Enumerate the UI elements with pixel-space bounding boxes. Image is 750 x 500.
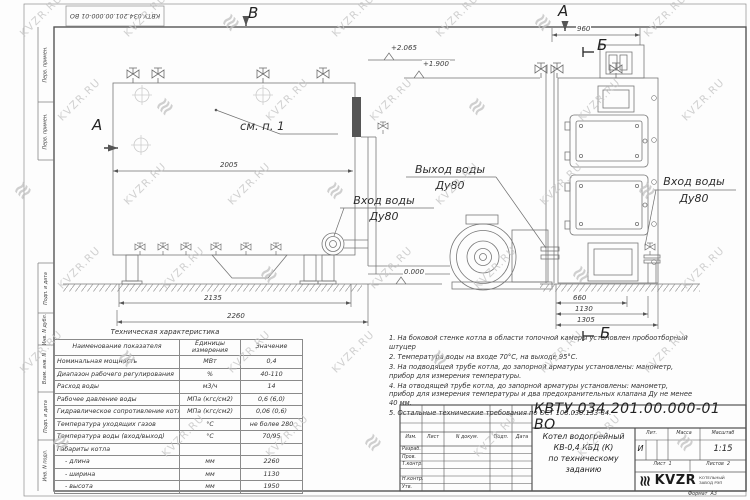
spec-cell-value: не более 280 [241, 418, 303, 431]
note-2: 2. Температура воды на входе 70°С, на вы… [389, 353, 695, 362]
spec-cell-name: Диапазон рабочего регулирования [55, 368, 180, 381]
spec-cell-name: Номинальная мощность [55, 356, 180, 369]
format-cell: Формат А3 [688, 492, 748, 497]
spec-cell-value: 0,4 [241, 356, 303, 369]
mass-label: Масса [668, 431, 700, 436]
dim-2135: 2135 [203, 294, 223, 302]
scale-value: 1:15 [700, 444, 746, 454]
kvzr-logo-subtitle: КОТЕЛЬНЫЙ ЗАВОД РЭП [699, 476, 725, 485]
margin-cell-vzam-inv: Взам. инв. N [38, 345, 54, 392]
inlet-right-label-line2: Ду80 [650, 192, 738, 205]
spec-cell-value: 1950 [241, 481, 303, 494]
spec-cell-value: 14 [241, 381, 303, 394]
title-block-doc-number: КВТУ.034.201.00.000-01 ВО [534, 406, 744, 427]
logo-sub-line2: ЗАВОД РЭП [699, 480, 722, 485]
col-list: Лист [422, 435, 444, 440]
spec-row: Диапазон рабочего регулирования%40-110 [55, 368, 303, 381]
margin-cell-podp-data-2: Подп. и дата [38, 392, 54, 440]
see-item-callout: см. п. 1 [240, 119, 284, 133]
drawing-sheet: КВТУ.034.201.00.000-01 ВО Перв. примен. … [0, 0, 750, 500]
rotated-doc-number: КВТУ.034.201.00.000-01 ВО [66, 6, 164, 26]
boiler-front-view [535, 45, 700, 292]
product-title-line2: КВ-0,4 КБД (К) [533, 442, 634, 453]
kvzr-coil-icon: ≋ [640, 474, 650, 487]
dim-1130: 1130 [574, 305, 594, 313]
col-podp: Подп. [490, 435, 512, 440]
row-utv: Утв. [402, 485, 412, 490]
spec-cell-value: 1130 [241, 468, 303, 481]
margin-cell-label: Подп. и дата [44, 272, 49, 305]
sheets-label: Листов [706, 462, 724, 467]
level-mark-top: +2.065 [390, 44, 418, 52]
section-letter-a-left: А [92, 116, 102, 134]
spec-cell-name: - ширина [55, 468, 180, 481]
spec-cell-unit: °С [180, 431, 241, 444]
spec-cell-unit: м3/ч [180, 381, 241, 394]
spec-cell-value: 0,6 (6,0) [241, 393, 303, 406]
product-title: Котел водогрейный КВ-0,4 КБД (К) по техн… [533, 431, 634, 475]
sheet-label: Лист [653, 462, 665, 467]
view-letter-a-right: А [558, 2, 568, 20]
spec-table-title: Техническая характеристика [60, 328, 270, 336]
spec-header-row: Наименование показателя Единицы измерени… [55, 340, 303, 356]
inlet-left-label-line1: Вход воды [336, 194, 432, 207]
spec-row: Габариты котла [55, 443, 303, 456]
sheet-cell: Лист 1 [635, 462, 690, 467]
level-mark-zero: 0.000 [403, 268, 425, 276]
margin-cell-inv-dubl: Инв. N дубл. [38, 313, 54, 345]
spec-header-unit: Единицы измерения [180, 340, 241, 356]
product-title-line1: Котел водогрейный [533, 431, 634, 442]
spec-header-value: Значение [241, 340, 303, 356]
spec-cell-value [241, 443, 303, 456]
margin-cell-label: Перв. примен. [44, 113, 49, 149]
manufacturer-logo: ≋ KVZR КОТЕЛЬНЫЙ ЗАВОД РЭП [639, 473, 725, 488]
kvzr-logo-text: KVZR [655, 473, 697, 488]
spec-row: Расход водым3/ч14 [55, 381, 303, 394]
format-value: А3 [711, 492, 717, 497]
spec-row: - ширинамм1130 [55, 468, 303, 481]
scale-label: Масштаб [700, 431, 746, 436]
dim-2005: 2005 [219, 161, 239, 169]
spec-cell-unit [180, 443, 241, 456]
boiler-side-view [63, 68, 450, 292]
spec-cell-name: Габариты котла [55, 443, 180, 456]
dim-660: 660 [572, 294, 587, 302]
spec-cell-unit: МПа (кгс/см2) [180, 406, 241, 419]
spec-cell-unit: мм [180, 456, 241, 469]
spec-cell-value: 2260 [241, 456, 303, 469]
inlet-right-label-line1: Вход воды [650, 175, 738, 188]
inlet-left-label-line2: Ду80 [336, 210, 432, 223]
spec-cell-name: Температура уходящих газов [55, 418, 180, 431]
spec-cell-name: - длина [55, 456, 180, 469]
col-data: Дата [512, 435, 532, 440]
lit-label: Лит. [635, 431, 668, 436]
spec-row: Рабочее давление водыМПа (кгс/см2)0,6 (6… [55, 393, 303, 406]
level-mark-mid: +1.900 [422, 60, 450, 68]
spec-row: Гидравлическое сопротивление котлаМПа (к… [55, 406, 303, 419]
spec-row: - длинамм2260 [55, 456, 303, 469]
row-razrab: Разраб. [402, 447, 421, 452]
row-tkontr: Т.контр. [402, 462, 423, 467]
row-prov: Пров. [402, 455, 416, 460]
margin-cell-label: Инв. N подл. [44, 450, 49, 482]
dim-960: 960 [576, 25, 591, 33]
spec-cell-unit: °С [180, 418, 241, 431]
spec-cell-unit: МВт [180, 356, 241, 369]
spec-cell-unit: мм [180, 481, 241, 494]
margin-cell-label: Перв. примен. [44, 46, 49, 82]
spec-cell-name: Рабочее давление воды [55, 393, 180, 406]
margin-cell-inv-podl: Инв. N подл. [38, 440, 54, 491]
spec-cell-value: 0,06 (0,6) [241, 406, 303, 419]
lit-value: И [635, 444, 646, 453]
col-izm: Изм. [400, 435, 422, 440]
note-3: 3. На подводящей трубе котла, до запорно… [389, 363, 695, 381]
spec-cell-unit: % [180, 368, 241, 381]
spec-cell-unit: МПа (кгс/см2) [180, 393, 241, 406]
spec-cell-name: Температура воды (вход/выход) [55, 431, 180, 444]
sheets-value: 2 [727, 462, 730, 467]
spec-cell-value: 70/95 [241, 431, 303, 444]
note-1: 1. На боковой стенке котла в области топ… [389, 334, 695, 352]
spec-row: Температура воды (вход/выход)°С70/95 [55, 431, 303, 444]
dim-1305: 1305 [576, 316, 596, 324]
spec-cell-unit: мм [180, 468, 241, 481]
col-ndoc: N докум. [444, 435, 490, 440]
fan-blower [450, 215, 552, 290]
spec-row: - высотамм1950 [55, 481, 303, 494]
spec-cell-name: Гидравлическое сопротивление котла [55, 406, 180, 419]
spec-cell-name: - высота [55, 481, 180, 494]
margin-cell-perv-primen-2: Перв. примен. [38, 102, 54, 160]
spec-cell-value: 40-110 [241, 368, 303, 381]
margin-cell-podp-data-1: Подп. и дата [38, 263, 54, 313]
margin-cell-perv-primen-1: Перв. примен. [38, 27, 54, 102]
dim-2260: 2260 [226, 312, 246, 320]
spec-row: Температура уходящих газов°Сне более 280 [55, 418, 303, 431]
sheet-value: 1 [669, 462, 672, 467]
spec-row: Номинальная мощностьМВт0,4 [55, 356, 303, 369]
margin-cell-label: Взам. инв. N [44, 353, 49, 384]
product-title-line3: по техническому заданию [533, 453, 634, 475]
margin-cell-label: Подп. и дата [44, 400, 49, 433]
sheets-cell: Листов 2 [690, 462, 746, 467]
section-letter-b-top: Б [597, 36, 607, 54]
row-nkontr: Н.контр. [402, 477, 423, 482]
margin-cell-label: Инв. N дубл. [44, 313, 49, 344]
outlet-label-line2: Ду80 [404, 179, 496, 192]
spec-table: Наименование показателя Единицы измерени… [54, 339, 303, 494]
spec-cell-name: Расход воды [55, 381, 180, 394]
format-label: Формат [688, 492, 707, 497]
spec-header-name: Наименование показателя [55, 340, 180, 356]
outlet-label-line1: Выход воды [404, 163, 496, 176]
view-letter-b-top: В [248, 4, 258, 22]
